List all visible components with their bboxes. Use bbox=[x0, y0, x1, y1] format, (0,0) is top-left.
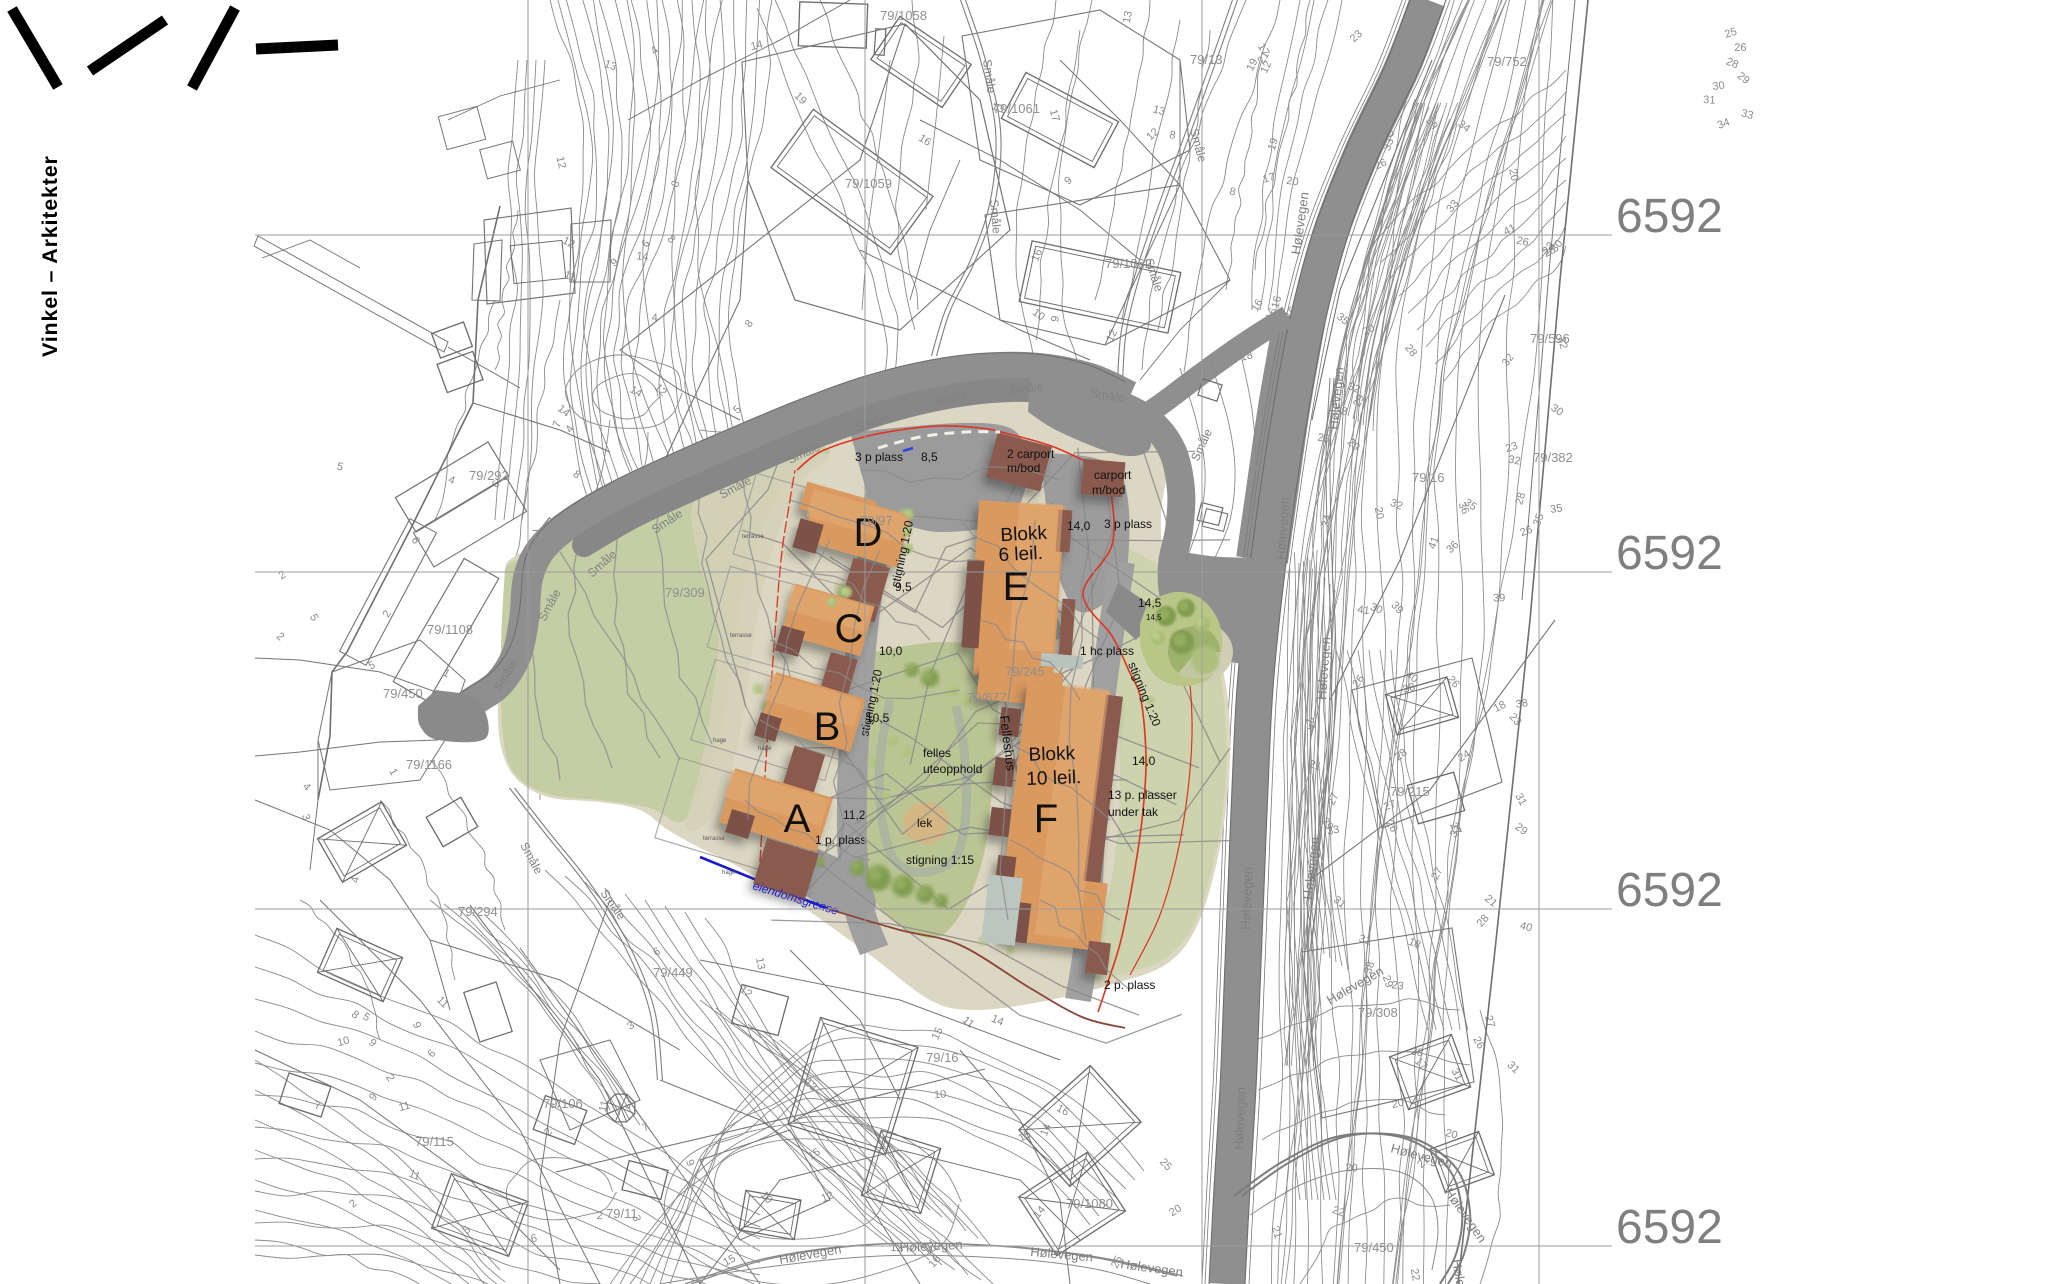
svg-text:79/308: 79/308 bbox=[1358, 1005, 1398, 1020]
svg-text:79/1108: 79/1108 bbox=[427, 622, 473, 637]
svg-text:1 hc plass: 1 hc plass bbox=[1080, 644, 1134, 658]
svg-text:10,0: 10,0 bbox=[879, 644, 903, 658]
svg-text:2: 2 bbox=[596, 1210, 603, 1222]
svg-text:Vinkel – Arkitekter: Vinkel – Arkitekter bbox=[38, 155, 62, 357]
svg-text:79/294: 79/294 bbox=[458, 904, 498, 919]
svg-text:79/1166: 79/1166 bbox=[406, 757, 452, 772]
svg-text:carport: carport bbox=[1094, 468, 1132, 482]
svg-text:79/677: 79/677 bbox=[967, 690, 1007, 705]
svg-text:22: 22 bbox=[1408, 1268, 1422, 1282]
svg-text:29: 29 bbox=[1317, 431, 1331, 445]
svg-text:79/292: 79/292 bbox=[469, 468, 509, 483]
svg-text:79/106: 79/106 bbox=[543, 1096, 583, 1111]
svg-text:uteopphold: uteopphold bbox=[923, 762, 982, 776]
svg-text:2 carport: 2 carport bbox=[1007, 447, 1055, 461]
svg-text:79/596: 79/596 bbox=[1530, 331, 1570, 346]
svg-text:3 p plass: 3 p plass bbox=[1104, 517, 1152, 531]
svg-text:79/1061: 79/1061 bbox=[993, 101, 1040, 116]
svg-text:79/752: 79/752 bbox=[1487, 54, 1527, 69]
svg-text:23: 23 bbox=[1391, 979, 1405, 993]
svg-text:1 p. plass: 1 p. plass bbox=[815, 833, 866, 847]
svg-text:10 leil.: 10 leil. bbox=[1026, 767, 1082, 790]
svg-text:6592: 6592 bbox=[1616, 190, 1723, 243]
svg-text:14: 14 bbox=[636, 250, 649, 263]
svg-text:20: 20 bbox=[1286, 175, 1300, 189]
svg-text:11,2: 11,2 bbox=[843, 808, 866, 822]
svg-text:20: 20 bbox=[1372, 506, 1386, 520]
svg-text:31: 31 bbox=[1703, 94, 1716, 107]
svg-text:14,0: 14,0 bbox=[1132, 754, 1156, 768]
svg-text:39: 39 bbox=[1493, 592, 1505, 604]
svg-text:terrasse: terrasse bbox=[703, 836, 725, 842]
svg-text:hage: hage bbox=[713, 738, 727, 744]
svg-text:14,0: 14,0 bbox=[1067, 519, 1091, 533]
svg-text:20: 20 bbox=[1345, 1162, 1358, 1174]
svg-text:13: 13 bbox=[1121, 10, 1135, 24]
svg-text:m/bod: m/bod bbox=[1092, 483, 1125, 497]
svg-text:10: 10 bbox=[933, 1088, 946, 1101]
svg-text:Blokk: Blokk bbox=[1028, 743, 1076, 766]
svg-text:13 p. plasser: 13 p. plasser bbox=[1108, 788, 1177, 802]
svg-text:79/450: 79/450 bbox=[383, 686, 423, 701]
svg-text:C: C bbox=[835, 607, 864, 651]
svg-text:20: 20 bbox=[1506, 168, 1520, 182]
svg-text:terrasse: terrasse bbox=[742, 534, 764, 540]
svg-text:6 leil.: 6 leil. bbox=[998, 543, 1043, 566]
svg-text:B: B bbox=[814, 705, 841, 749]
svg-text:30: 30 bbox=[1712, 80, 1726, 93]
svg-text:lek: lek bbox=[917, 816, 933, 830]
svg-text:79/245: 79/245 bbox=[1005, 664, 1045, 679]
svg-text:6592: 6592 bbox=[1616, 864, 1723, 917]
svg-text:13: 13 bbox=[753, 957, 767, 971]
svg-text:m/bod: m/bod bbox=[1007, 461, 1040, 475]
svg-text:8,5: 8,5 bbox=[921, 450, 938, 464]
svg-text:32: 32 bbox=[1507, 453, 1521, 467]
svg-text:felles: felles bbox=[923, 746, 951, 760]
svg-text:79/1058: 79/1058 bbox=[880, 8, 927, 23]
svg-text:stigning 1:15: stigning 1:15 bbox=[906, 853, 974, 867]
svg-text:79/215: 79/215 bbox=[1390, 784, 1430, 799]
svg-text:A: A bbox=[784, 797, 811, 841]
svg-text:3 p plass: 3 p plass bbox=[855, 450, 903, 464]
svg-text:79/309: 79/309 bbox=[665, 585, 705, 600]
svg-text:terrasse: terrasse bbox=[730, 633, 752, 639]
svg-text:26: 26 bbox=[1734, 42, 1746, 54]
svg-text:79/16: 79/16 bbox=[926, 1050, 959, 1065]
svg-text:79/293: 79/293 bbox=[532, 527, 572, 542]
svg-text:35: 35 bbox=[1549, 502, 1563, 516]
svg-text:79/13: 79/13 bbox=[1190, 52, 1223, 67]
svg-text:79/11: 79/11 bbox=[606, 1206, 638, 1221]
svg-text:under tak: under tak bbox=[1108, 805, 1159, 819]
svg-text:Småle: Småle bbox=[987, 199, 1004, 234]
svg-text:79/450: 79/450 bbox=[1354, 1240, 1394, 1255]
svg-text:14,5: 14,5 bbox=[1138, 596, 1162, 610]
svg-text:79/449: 79/449 bbox=[653, 965, 693, 980]
svg-text:79/115: 79/115 bbox=[415, 1134, 454, 1149]
svg-text:Hølevegen: Hølevegen bbox=[1238, 867, 1255, 930]
svg-text:79/16: 79/16 bbox=[1412, 470, 1445, 485]
svg-text:hage: hage bbox=[722, 870, 736, 876]
svg-text:79/1059: 79/1059 bbox=[845, 176, 892, 191]
svg-text:hage: hage bbox=[758, 746, 772, 752]
svg-text:2 p. plass: 2 p. plass bbox=[1104, 978, 1155, 992]
svg-text:14,5: 14,5 bbox=[1146, 613, 1162, 622]
svg-text:6592: 6592 bbox=[1616, 527, 1723, 580]
svg-text:33: 33 bbox=[1326, 824, 1340, 838]
svg-text:F: F bbox=[1034, 797, 1058, 841]
svg-text:6592: 6592 bbox=[1616, 1201, 1723, 1254]
svg-text:Hølevegen: Hølevegen bbox=[1231, 1087, 1248, 1150]
svg-text:79/1080: 79/1080 bbox=[1066, 1196, 1113, 1211]
